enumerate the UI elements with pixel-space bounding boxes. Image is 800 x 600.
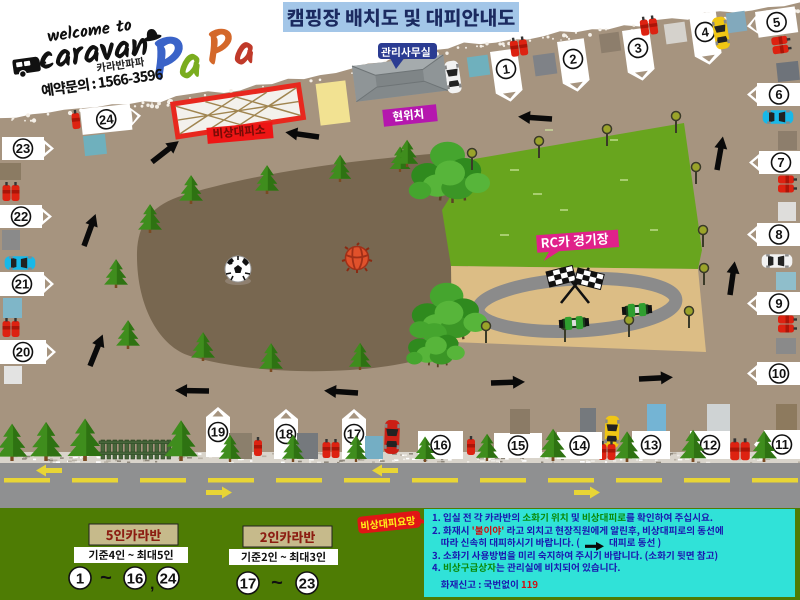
svg-text:23: 23 xyxy=(299,575,316,592)
svg-text:14: 14 xyxy=(572,438,587,453)
svg-text:10: 10 xyxy=(772,366,786,381)
svg-text:1: 1 xyxy=(76,570,84,587)
svg-text:24: 24 xyxy=(98,111,115,128)
svg-text:11: 11 xyxy=(775,437,789,452)
svg-text:22: 22 xyxy=(14,209,28,224)
svg-text:16: 16 xyxy=(127,570,144,587)
svg-text:16: 16 xyxy=(433,438,447,453)
svg-text:8: 8 xyxy=(775,227,782,242)
svg-text:~: ~ xyxy=(271,572,283,594)
svg-text:,: , xyxy=(150,576,154,593)
svg-text:6: 6 xyxy=(775,87,782,102)
svg-text:20: 20 xyxy=(16,345,30,360)
svg-text:9: 9 xyxy=(775,296,782,311)
svg-text:24: 24 xyxy=(160,570,177,587)
svg-text:~: ~ xyxy=(100,567,112,589)
svg-text:15: 15 xyxy=(511,438,525,453)
svg-text:12: 12 xyxy=(703,438,717,453)
svg-text:19: 19 xyxy=(211,425,225,440)
svg-text:21: 21 xyxy=(15,277,29,292)
svg-text:13: 13 xyxy=(644,438,658,453)
svg-text:7: 7 xyxy=(777,155,784,170)
svg-text:23: 23 xyxy=(16,141,30,156)
svg-text:17: 17 xyxy=(240,575,257,592)
